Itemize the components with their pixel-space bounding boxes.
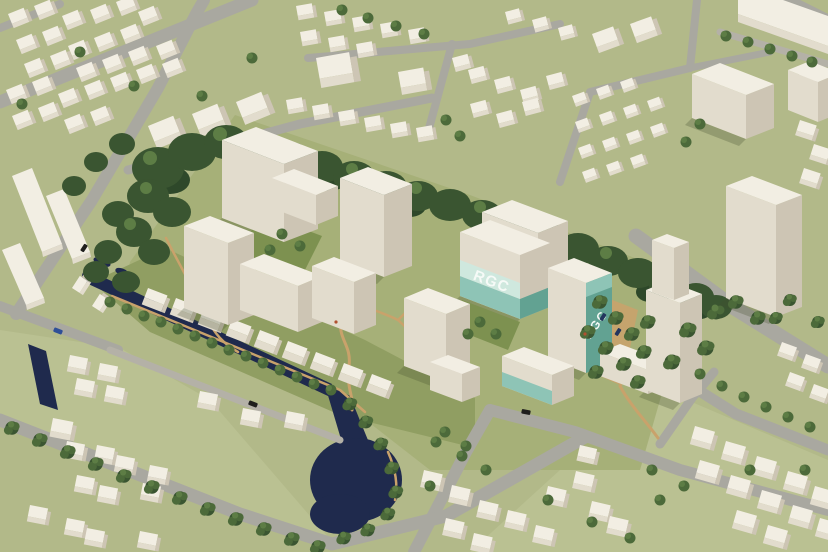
masterplan-render: RGC RGC bbox=[0, 0, 828, 552]
render-canvas: RGC RGC bbox=[0, 0, 828, 552]
